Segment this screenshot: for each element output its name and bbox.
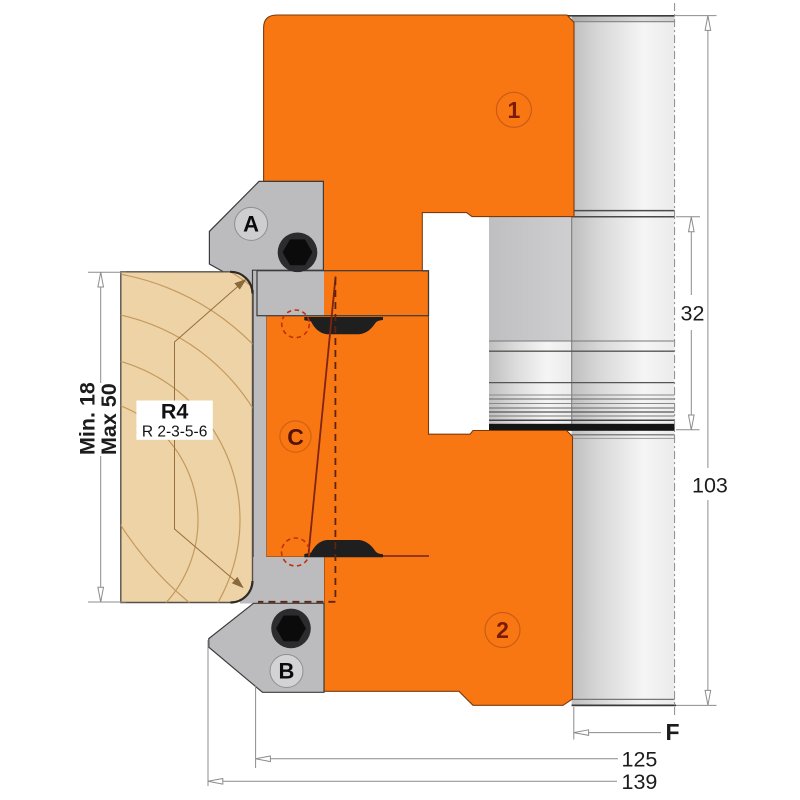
svg-text:F: F xyxy=(666,719,680,745)
svg-text:32: 32 xyxy=(681,302,705,326)
svg-text:103: 103 xyxy=(692,474,728,498)
svg-text:R 2-3-5-6: R 2-3-5-6 xyxy=(142,424,207,441)
svg-text:139: 139 xyxy=(622,770,658,794)
svg-text:B: B xyxy=(279,659,295,684)
svg-text:C: C xyxy=(287,424,304,450)
svg-text:R4: R4 xyxy=(161,400,189,424)
svg-text:A: A xyxy=(243,212,259,237)
svg-text:125: 125 xyxy=(622,748,658,772)
svg-text:Max 50: Max 50 xyxy=(97,383,121,455)
svg-text:2: 2 xyxy=(496,617,509,643)
svg-text:1: 1 xyxy=(508,97,521,123)
svg-text:Min. 18: Min. 18 xyxy=(76,382,100,455)
